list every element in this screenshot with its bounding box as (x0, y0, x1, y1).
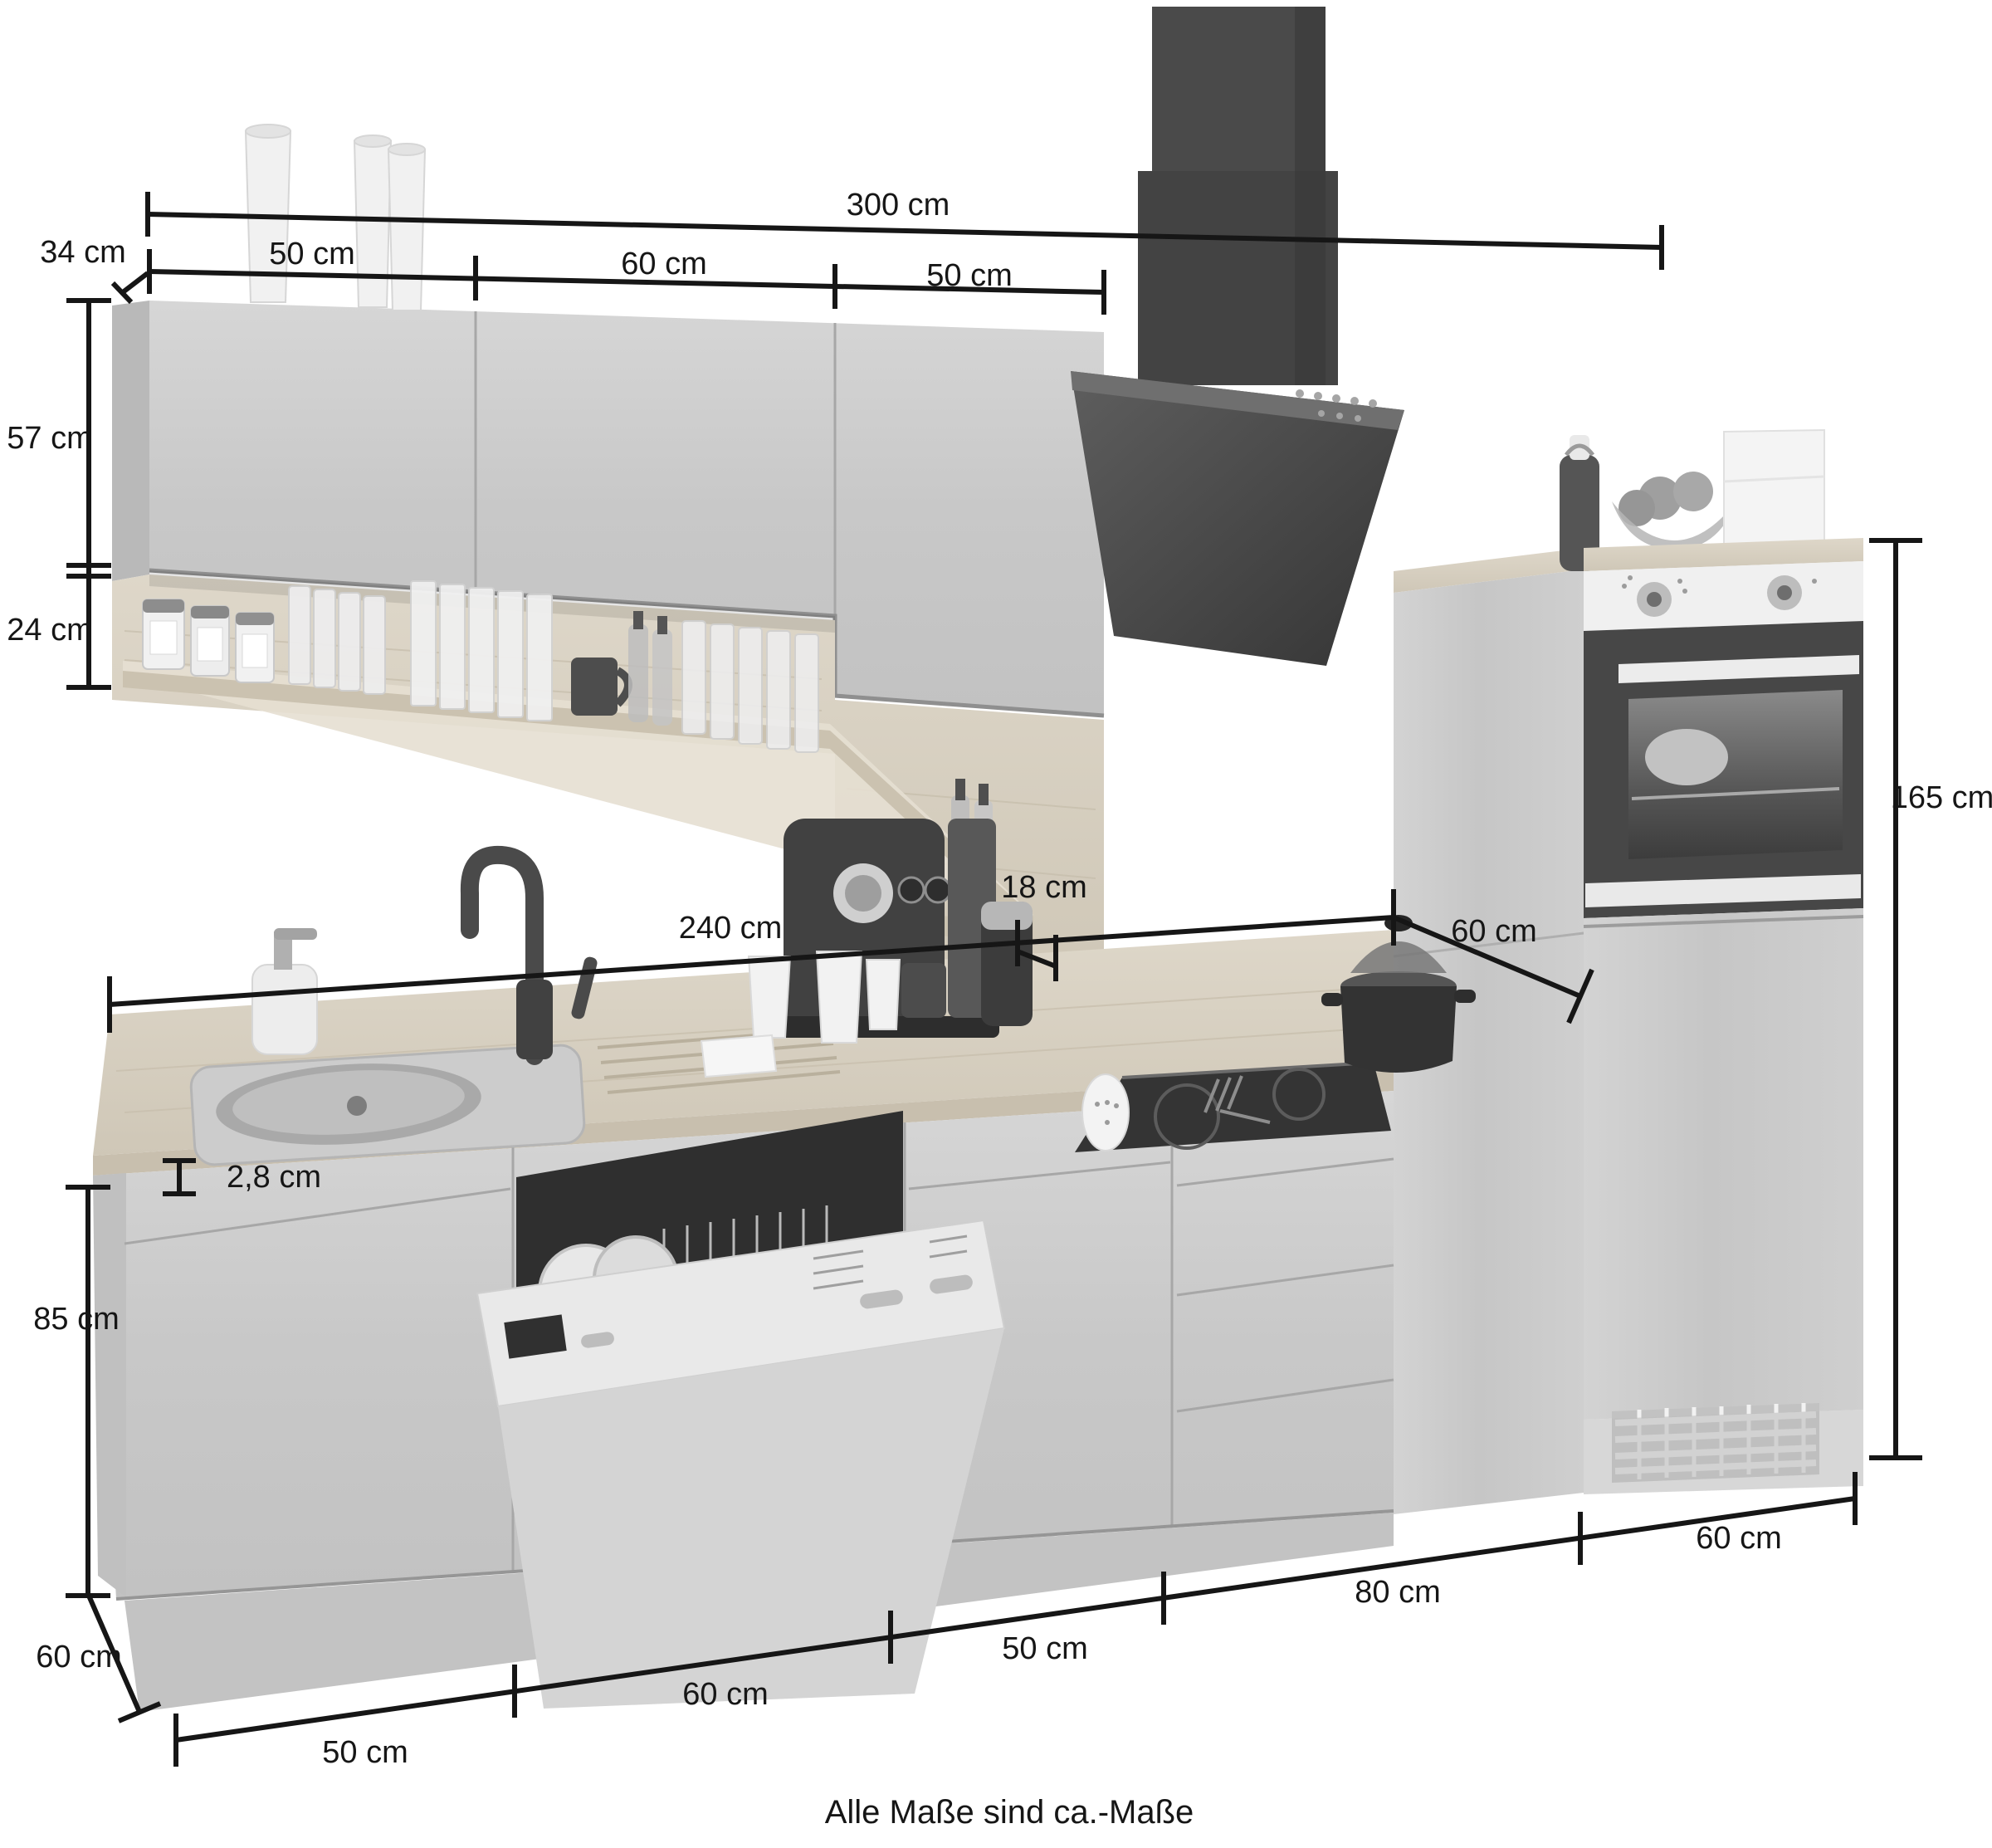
oven-control-panel (1584, 561, 1863, 631)
glass-board (701, 1035, 776, 1077)
label-total-width: 300 cm (847, 188, 950, 222)
diagram-canvas: 300 cm 34 cm 50 cm 60 cm 50 cm 57 cm 24 … (0, 0, 1992, 1848)
label-wall-depth: 34 cm (40, 235, 125, 270)
label-tall-depth: 60 cm (1451, 914, 1536, 949)
label-base-depth: 60 cm (36, 1640, 121, 1674)
label-shelf-depth: 18 cm (1001, 870, 1086, 905)
label-tall-height: 165 cm (1891, 780, 1992, 815)
dim-line-34 (123, 273, 148, 292)
label-base-seg-4: 80 cm (1355, 1575, 1440, 1610)
measurement-note: Alle Maße sind ca.-Maße (825, 1794, 1194, 1831)
egg-timer (1082, 1074, 1129, 1151)
label-base-seg-3: 50 cm (1002, 1631, 1087, 1666)
wine-glasses (682, 621, 818, 752)
thermos-grinder (981, 902, 1033, 1026)
tower-plinth (1584, 1410, 1863, 1494)
spice-jars (143, 599, 274, 682)
fruit-bowl (1612, 472, 1736, 550)
hood-chimney-shade (1295, 7, 1326, 385)
label-wall-seg-3: 50 cm (926, 258, 1012, 293)
base-left-side (93, 1173, 126, 1597)
label-base-height: 85 cm (33, 1302, 119, 1337)
label-worktop-run: 240 cm (679, 911, 783, 946)
label-base-seg-1: 50 cm (322, 1735, 408, 1770)
bread-in-oven (1645, 729, 1728, 785)
label-base-seg-5: 60 cm (1696, 1521, 1781, 1556)
wall-cabinet-side-panel (112, 301, 149, 581)
label-wall-seg-2: 60 cm (621, 247, 706, 281)
tall-glasses (411, 581, 552, 721)
label-base-seg-2: 60 cm (682, 1677, 768, 1712)
label-worktop-thickness: 2,8 cm (227, 1160, 321, 1195)
label-shelf-panel-height: 24 cm (7, 613, 92, 648)
label-wall-cabinet-height: 57 cm (7, 421, 92, 456)
fridge-door (1584, 908, 1863, 1420)
white-cups (749, 951, 900, 1043)
label-wall-seg-1: 50 cm (269, 237, 354, 271)
white-carton (1724, 430, 1824, 545)
